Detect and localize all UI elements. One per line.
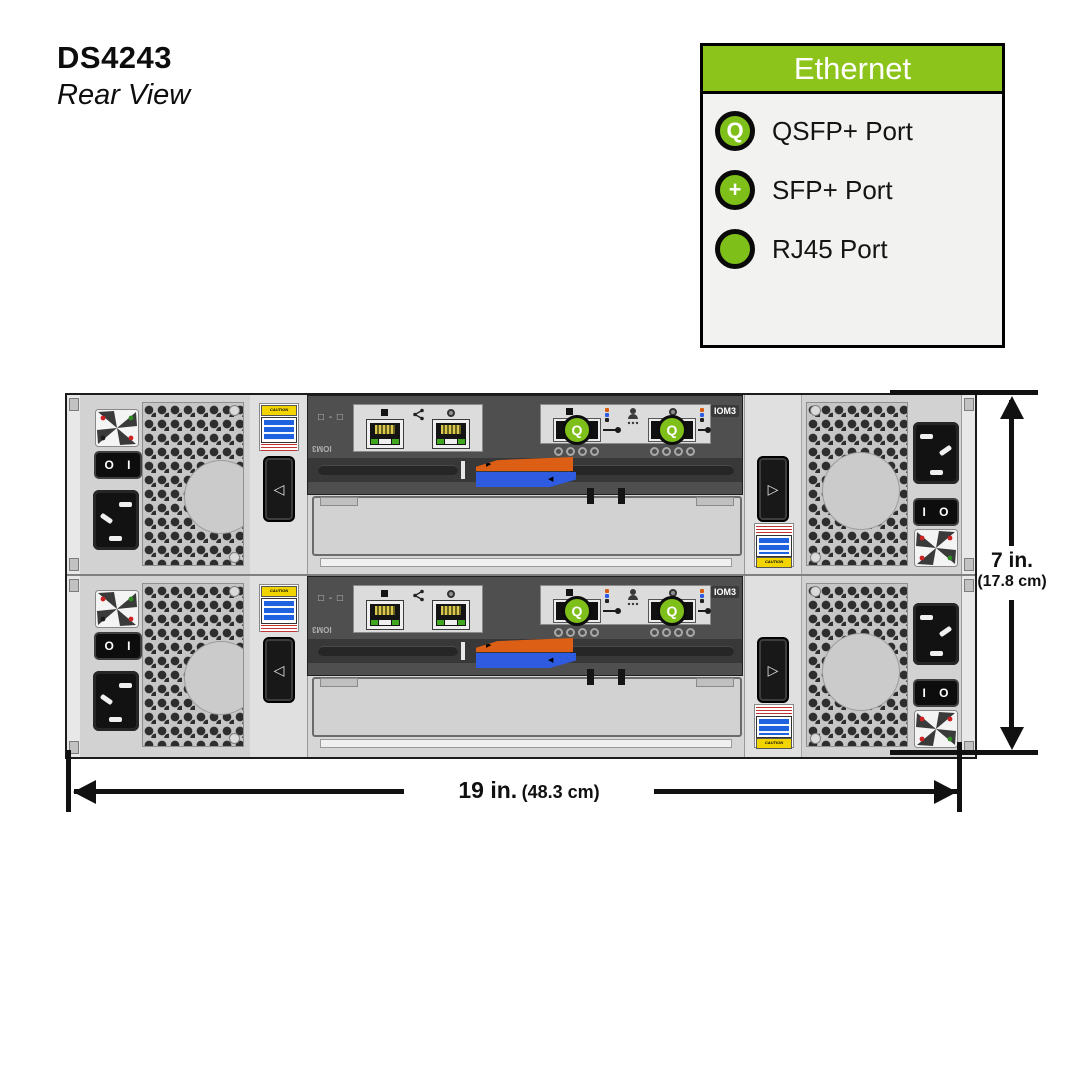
service-label: CAUTION — [754, 523, 794, 567]
qsfp-port-icon: Q — [715, 111, 755, 151]
square-indicator-icon — [381, 409, 388, 416]
qsfp-port: Q — [554, 600, 600, 622]
power-inlet-icon — [93, 671, 139, 731]
caution-label-text: CAUTION — [765, 559, 783, 564]
service-label: CAUTION — [754, 704, 794, 748]
arrow-line-icon — [698, 429, 706, 431]
qsfp-port: Q — [649, 600, 695, 622]
fan-status-icon — [95, 590, 139, 628]
power-inlet-icon — [913, 422, 959, 484]
latch-triangle-icon: ▷ — [768, 662, 779, 679]
width-metric: (48.3 cm) — [522, 782, 600, 802]
rack-ear-left — [67, 576, 81, 757]
fan-grille — [142, 402, 244, 566]
dimension-line — [1009, 600, 1014, 745]
legend-item-label: RJ45 Port — [772, 234, 888, 265]
power-inlet-icon — [913, 603, 959, 665]
height-metric: (17.8 cm) — [953, 573, 1071, 591]
shelf-row: O I CAUTION ◁ □ - □ IOM3 IOM3 — [67, 576, 975, 757]
power-inlet-icon — [93, 490, 139, 550]
title-block: DS4243 Rear View — [57, 40, 190, 112]
fan-status-icon — [914, 529, 958, 567]
qsfp-panel: Q Q — [540, 404, 711, 444]
power-switch-label: I O — [922, 505, 953, 519]
qsfp-port-icon: Q — [657, 596, 687, 626]
power-switch-label: O I — [104, 458, 135, 472]
ethernet-panel — [353, 404, 483, 452]
fru-strip-left: CAUTION ◁ — [250, 395, 308, 574]
lever-arrow-icon: ◀ — [548, 656, 553, 664]
shelf-id-label: □ - □ — [318, 593, 344, 604]
latch-triangle-icon: ◁ — [274, 481, 285, 498]
square-indicator-icon — [381, 590, 388, 597]
fan-grille — [806, 583, 908, 747]
dimension-tick — [890, 390, 1038, 395]
fan-status-icon — [95, 409, 139, 447]
qsfp-port-icon: Q — [562, 415, 592, 445]
power-switch-label: I O — [922, 686, 953, 700]
power-switch: O I — [94, 632, 142, 660]
legend-item: RJ45 Port — [715, 227, 1002, 271]
led-stack-icon — [700, 588, 704, 604]
latch-handle: ◁ — [263, 456, 295, 522]
shelf-id-label: □ - □ — [318, 412, 344, 423]
dimension-tick — [890, 750, 1038, 755]
person-icon — [626, 407, 640, 427]
square-indicator-icon — [566, 408, 573, 415]
iom-label-rotated: IOM3 — [312, 625, 332, 634]
circle-indicator-icon — [447, 590, 455, 598]
blank-panel — [312, 677, 742, 737]
caution-label-text: CAUTION — [270, 407, 288, 412]
cam-lever-blue: ◀ — [476, 472, 576, 487]
shelf-chassis-rear: O I CAUTION ◁ □ - □ IOM3 IOM3 — [65, 393, 977, 759]
dimension-line — [1009, 400, 1014, 546]
sfp-port-icon: + — [715, 170, 755, 210]
height-dimension-label: 7 in. (17.8 cm) — [953, 549, 1071, 591]
rack-ear-right — [961, 576, 975, 757]
square-indicator-icon — [566, 589, 573, 596]
width-dimension-label: 19 in. (48.3 cm) — [404, 777, 654, 804]
latch-handle: ▷ — [757, 637, 789, 703]
power-switch: I O — [913, 498, 959, 526]
caution-label-text: CAUTION — [270, 588, 288, 593]
arrow-line-icon — [603, 610, 616, 612]
circle-indicator-icon — [447, 409, 455, 417]
power-supply-right: I O — [801, 576, 962, 757]
page-subtitle: Rear View — [57, 79, 190, 112]
power-switch: I O — [913, 679, 959, 707]
iom-label-rotated: IOM3 — [312, 444, 332, 453]
page-title: DS4243 — [57, 40, 190, 76]
iom-label: IOM3 — [711, 405, 739, 417]
arrow-line-icon — [603, 429, 616, 431]
legend-item: Q QSFP+ Port — [715, 109, 1002, 153]
blank-panel — [312, 496, 742, 556]
width-inches: 19 in. — [458, 777, 517, 803]
caution-label: CAUTION — [259, 584, 299, 632]
extension-line — [957, 742, 962, 812]
person-icon — [626, 588, 640, 608]
latch-handle: ▷ — [757, 456, 789, 522]
fru-strip-right: ▷ CAUTION — [744, 395, 803, 574]
power-supply-right: I O — [801, 395, 962, 574]
caution-label-text: CAUTION — [765, 740, 783, 745]
power-switch-label: O I — [104, 639, 135, 653]
legend-item-label: QSFP+ Port — [772, 116, 913, 147]
rack-ear-left — [67, 395, 81, 574]
rack-ear-right — [961, 395, 975, 574]
led-stack-icon — [605, 407, 609, 423]
fru-strip-left: CAUTION ◁ — [250, 576, 308, 757]
cam-lever-blue: ◀ — [476, 653, 576, 668]
rj45-port — [366, 600, 404, 630]
fan-grille — [806, 402, 908, 566]
power-supply-left: O I — [80, 576, 251, 757]
iom-module: □ - □ IOM3 IOM3 — [307, 395, 743, 495]
iom-module: □ - □ IOM3 IOM3 — [307, 576, 743, 676]
bottom-strip — [320, 558, 732, 567]
qsfp-port: Q — [649, 419, 695, 441]
shelf-row: O I CAUTION ◁ □ - □ IOM3 IOM3 — [67, 395, 975, 576]
network-share-icon — [412, 589, 425, 602]
bottom-strip — [320, 739, 732, 748]
ethernet-panel — [353, 585, 483, 633]
qsfp-port-icon: Q — [562, 596, 592, 626]
arrow-up-icon — [1000, 396, 1024, 419]
arrow-down-icon — [1000, 727, 1024, 750]
latch-triangle-icon: ▷ — [768, 481, 779, 498]
latch-triangle-icon: ◁ — [274, 662, 285, 679]
caution-label: CAUTION — [259, 403, 299, 451]
led-stack-icon — [605, 588, 609, 604]
power-switch: O I — [94, 451, 142, 479]
legend-header: Ethernet — [703, 46, 1002, 94]
arrow-right-icon — [934, 780, 957, 804]
arrow-left-icon — [73, 780, 96, 804]
lever-arrow-icon: ◀ — [548, 475, 553, 483]
arrow-line-icon — [698, 610, 706, 612]
qsfp-port: Q — [554, 419, 600, 441]
network-share-icon — [412, 408, 425, 421]
rj45-port — [432, 419, 470, 449]
qsfp-port-icon: Q — [657, 415, 687, 445]
qsfp-panel: Q Q — [540, 585, 711, 625]
fan-grille — [142, 583, 244, 747]
iom-label: IOM3 — [711, 586, 739, 598]
rj45-port — [366, 419, 404, 449]
rj45-port-icon — [715, 229, 755, 269]
height-inches: 7 in. — [953, 549, 1071, 573]
fan-status-icon — [914, 710, 958, 748]
power-supply-left: O I — [80, 395, 251, 574]
legend-box: Ethernet Q QSFP+ Port + SFP+ Port RJ45 P… — [700, 43, 1005, 348]
fru-strip-right: ▷ CAUTION — [744, 576, 803, 757]
legend-item: + SFP+ Port — [715, 168, 1002, 212]
page: DS4243 Rear View Ethernet Q QSFP+ Port +… — [0, 0, 1080, 1080]
legend-item-label: SFP+ Port — [772, 175, 893, 206]
latch-handle: ◁ — [263, 637, 295, 703]
extension-line — [66, 750, 71, 812]
led-stack-icon — [700, 407, 704, 423]
rj45-port — [432, 600, 470, 630]
